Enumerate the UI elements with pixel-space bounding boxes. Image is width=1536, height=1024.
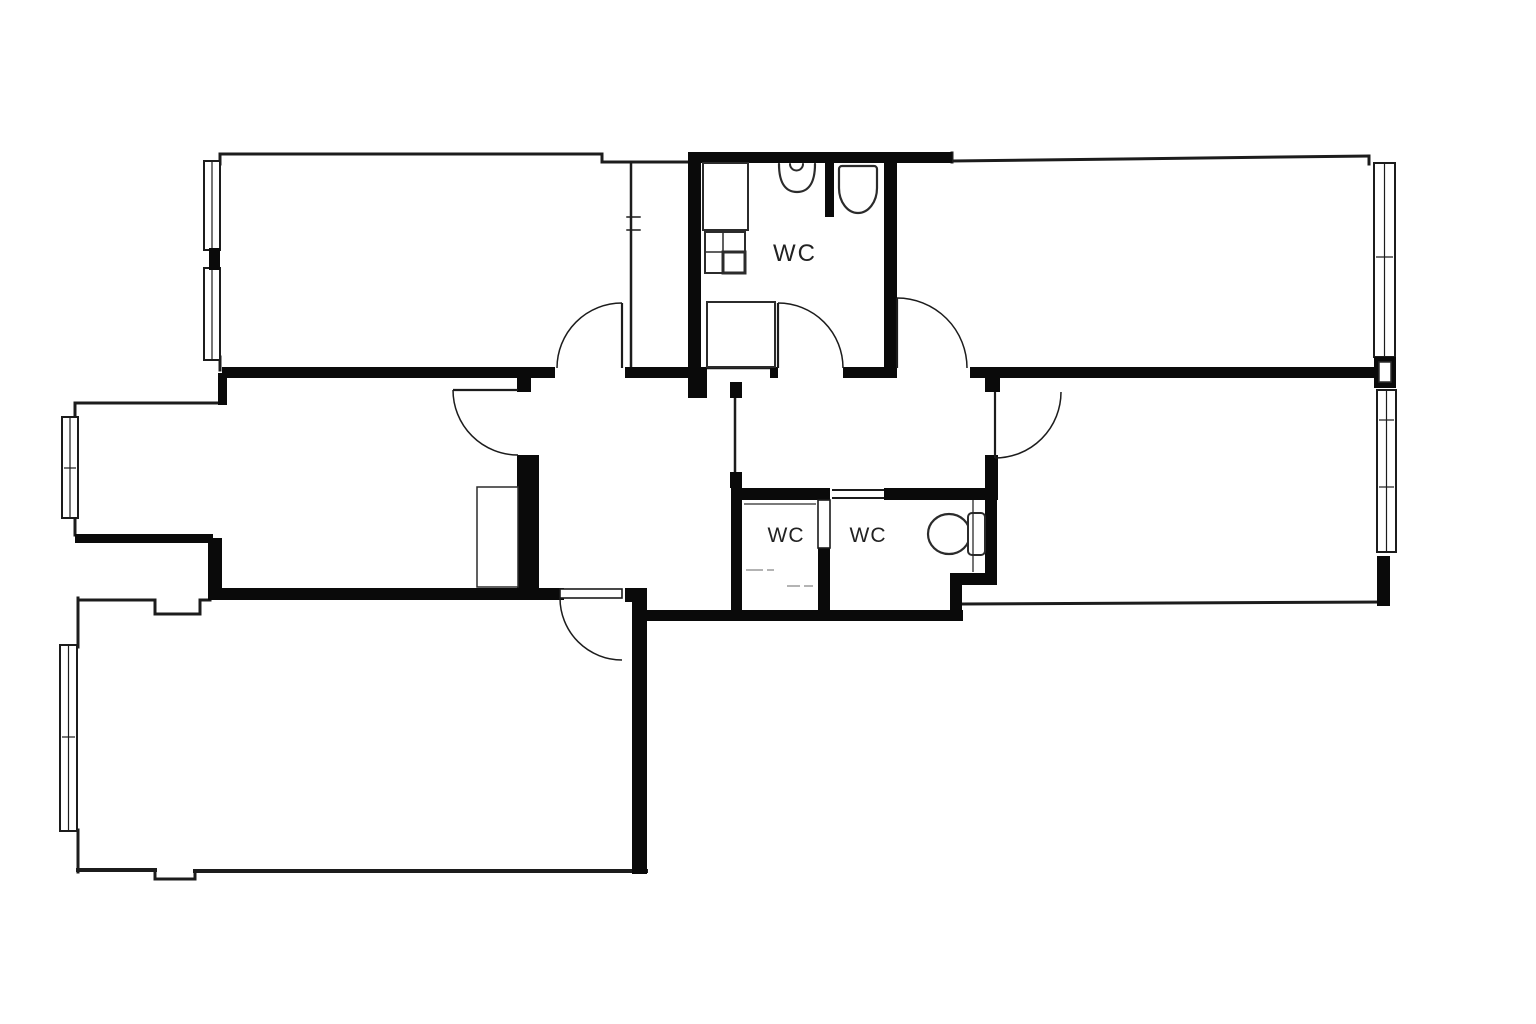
hall-wardrobe xyxy=(477,487,518,587)
hall-west-wall xyxy=(517,455,539,590)
wc-counter xyxy=(703,163,748,230)
toilet-mid-tank xyxy=(968,513,985,555)
passage-post-bottom xyxy=(730,472,742,488)
door-bottom-left-room-leaf xyxy=(560,589,622,598)
bottom-room-east-wall xyxy=(632,598,647,874)
wc-left-label: WC xyxy=(768,524,805,547)
floor-plan-drawing: WCWCWC xyxy=(0,0,1536,1024)
southeast-corner-wall xyxy=(1377,556,1390,606)
middle-left-south-stub xyxy=(208,538,222,594)
wc-left-north-wall xyxy=(731,488,830,500)
wc-divider-wall xyxy=(818,548,830,613)
hall-west-stub xyxy=(517,378,531,392)
spine-wall-jamb xyxy=(770,367,778,378)
right-room-south-wall xyxy=(962,602,1386,604)
wc-top-label: WC xyxy=(773,240,817,267)
wc-top-toilet-partition xyxy=(825,152,834,217)
wc-top-west-wall xyxy=(688,152,701,378)
wc-top-north-wall xyxy=(688,152,952,163)
south-exterior-wall xyxy=(643,610,963,621)
door-wc-left-leaf-leaf xyxy=(818,500,830,548)
wc-top-east-wall xyxy=(884,152,897,378)
middle-left-south-wall-a xyxy=(75,534,213,543)
wc-top-west-corner xyxy=(688,367,707,398)
spine-wall-d xyxy=(970,367,1377,378)
window-pier-left xyxy=(209,248,220,270)
wc-cabinet-box xyxy=(723,252,745,273)
hall-south-wall xyxy=(208,588,564,600)
wc-right-north-wall xyxy=(884,488,997,500)
wc-left-west-wall xyxy=(731,488,742,613)
floor-plan-page: WCWCWC xyxy=(0,0,1536,1024)
toilet-mid-bowl xyxy=(928,514,970,554)
left-room-jog xyxy=(218,373,227,405)
wc-right-east-wall xyxy=(985,488,997,585)
junction-block-inner xyxy=(1379,362,1391,382)
spine-wall-a xyxy=(222,367,555,378)
right-room-door-stub xyxy=(985,375,1000,392)
wc-right-label: WC xyxy=(850,524,887,547)
shower-tray xyxy=(707,302,775,367)
wc-right-jut-v xyxy=(950,573,962,621)
passage-post-top xyxy=(730,382,742,398)
